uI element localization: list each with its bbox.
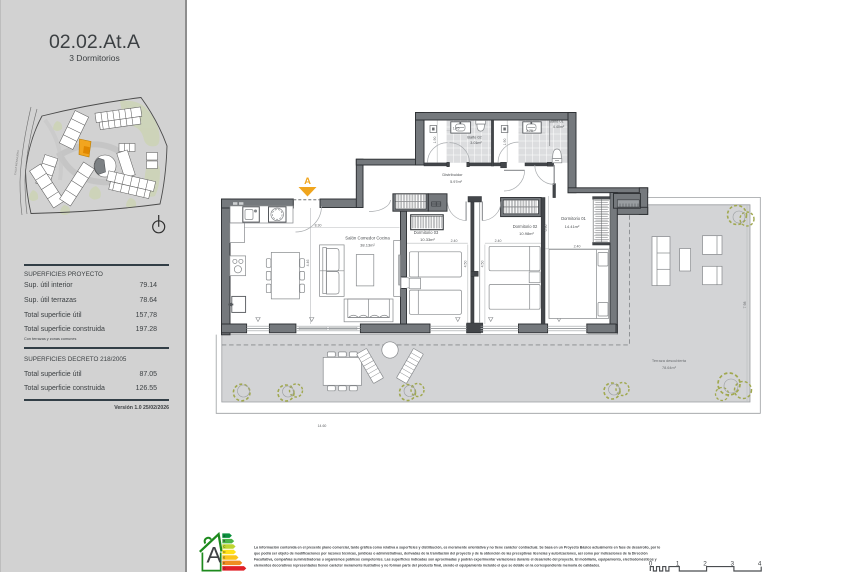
svg-text:4.50: 4.50	[481, 261, 485, 268]
svg-text:A: A	[206, 543, 221, 568]
svg-text:A: A	[223, 534, 225, 538]
svg-text:78.64m²: 78.64m²	[662, 366, 677, 370]
svg-text:3.75: 3.75	[526, 129, 533, 133]
svg-text:5.97m²: 5.97m²	[450, 180, 463, 184]
svg-text:La información contenida en el: La información contenida en el presente …	[254, 545, 660, 549]
svg-text:10.33m²: 10.33m²	[420, 237, 435, 242]
svg-text:E: E	[223, 556, 225, 560]
svg-text:Baño 01: Baño 01	[549, 119, 563, 123]
svg-text:1.90: 1.90	[433, 137, 437, 144]
svg-text:Distribuidor: Distribuidor	[442, 172, 463, 177]
svg-text:Dormitorio 01: Dormitorio 01	[561, 216, 586, 221]
svg-text:1.90: 1.90	[503, 139, 507, 146]
svg-text:Salón Comedor Cocina: Salón Comedor Cocina	[345, 235, 390, 240]
svg-text:B: B	[223, 539, 225, 543]
svg-text:14.60: 14.60	[318, 424, 327, 428]
svg-text:3.01m²: 3.01m²	[470, 141, 482, 145]
svg-text:4: 4	[758, 560, 762, 567]
svg-text:10.98m²: 10.98m²	[519, 231, 534, 236]
svg-text:1.45: 1.45	[453, 127, 460, 131]
svg-text:4.50: 4.50	[464, 261, 468, 268]
svg-text:Baño 02: Baño 02	[467, 135, 481, 139]
svg-text:7.98: 7.98	[743, 302, 747, 309]
svg-text:4.40m²: 4.40m²	[553, 125, 565, 129]
svg-text:A: A	[304, 176, 311, 187]
svg-text:2.40: 2.40	[574, 245, 581, 249]
svg-text:2.40: 2.40	[495, 239, 502, 243]
svg-text:8.30: 8.30	[315, 223, 322, 227]
svg-text:38.13m²: 38.13m²	[360, 243, 375, 248]
svg-text:Terraza descubierta: Terraza descubierta	[652, 358, 687, 363]
svg-text:elementos decorativos represen: elementos decorativos representados tien…	[254, 564, 600, 568]
svg-text:14.41m²: 14.41m²	[565, 224, 580, 229]
svg-text:4.46: 4.46	[306, 260, 310, 267]
svg-text:Dormitorio 02: Dormitorio 02	[513, 224, 538, 229]
svg-text:Facultativa, compañías suminis: Facultativa, compañías suministradoras u…	[254, 558, 657, 562]
svg-text:que podrá ser objeto de modifi: que podrá ser objeto de modificaciones p…	[254, 552, 648, 556]
svg-text:0.90: 0.90	[544, 225, 548, 232]
svg-text:F: F	[223, 561, 225, 565]
svg-text:Dormitorio 03: Dormitorio 03	[414, 230, 439, 235]
svg-text:2.40: 2.40	[451, 239, 458, 243]
